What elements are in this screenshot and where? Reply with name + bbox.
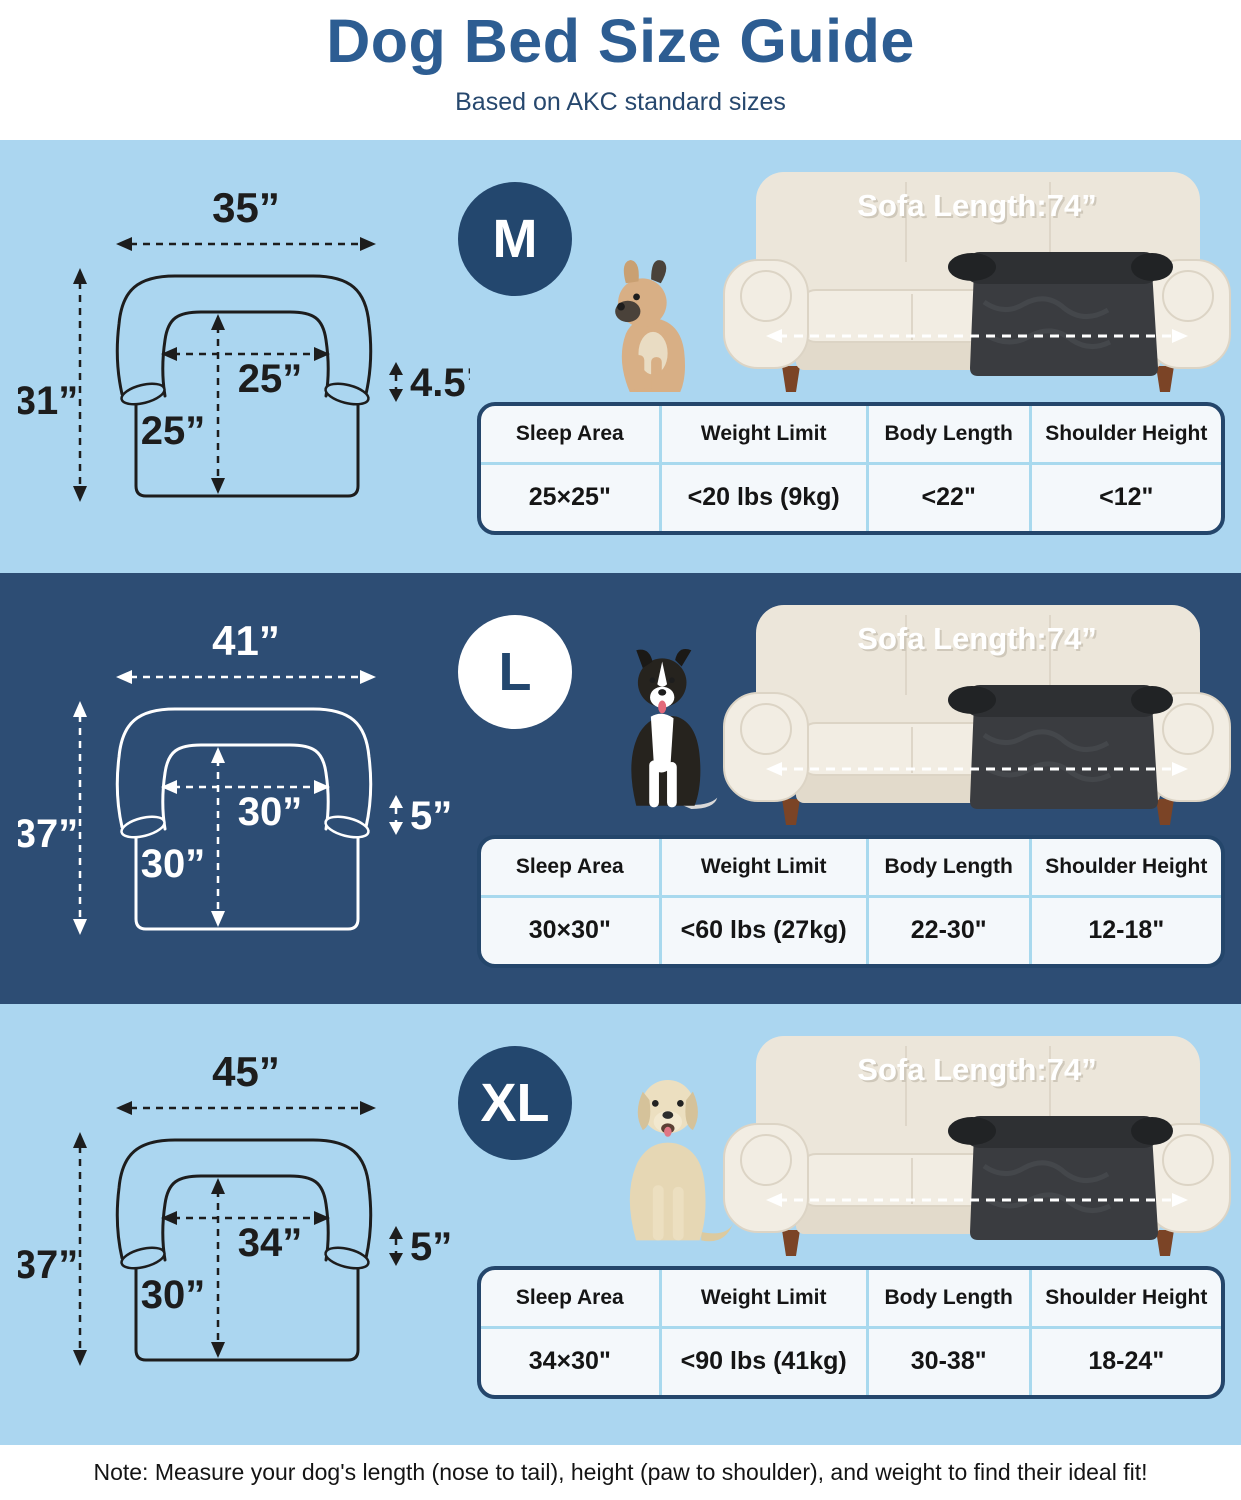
sofa-with-dog-bed-photo: Sofa Length:74” Sofa Length:74” [716,597,1238,829]
header: Dog Bed Size Guide Based on AKC standard… [0,0,1241,140]
table-value-weight-limit: <20 lbs (9kg) [659,465,866,531]
table-value-sleep-area: 25×25" [481,465,659,531]
table-header-shoulder-height: Shoulder Height [1029,1270,1221,1329]
bolster-height-label: 5” [410,1225,452,1269]
bolster-height-label: 4.5” [410,361,470,405]
dog-photo [596,258,714,394]
outer-height-label: 31” [18,379,78,423]
table-value-sleep-area: 34×30" [481,1329,659,1395]
inner-width-label: 25” [238,357,303,401]
size-badge: L [458,615,572,729]
bed-top-view-diagram: 41” 37” 30” 30” 5” [18,609,470,957]
size-section-m: 35” 31” 25” 25” 4.5” M [0,140,1241,573]
table-value-weight-limit: <90 lbs (41kg) [659,1329,866,1395]
size-section-xl: 45” 37” 34” 30” 5” XL [0,1004,1241,1445]
table-value-shoulder-height: 18-24" [1029,1329,1221,1395]
bed-top-view-diagram: 35” 31” 25” 25” 4.5” [18,176,470,524]
table-value-body-length: 22-30" [866,898,1029,964]
inner-depth-label: 30” [141,1273,206,1317]
sofa-with-dog-bed-photo: Sofa Length:74” Sofa Length:74” [716,164,1238,396]
outer-width-label: 35” [212,184,280,231]
dog-bed-cover [948,685,1173,809]
size-section-l: 41” 37” 30” 30” 5” L [0,573,1241,1004]
sofa-with-dog-bed-photo: Sofa Length:74” Sofa Length:74” [716,1028,1238,1260]
page-title: Dog Bed Size Guide [0,6,1241,76]
table-value-body-length: 30-38" [866,1329,1029,1395]
page-subtitle: Based on AKC standard sizes [0,88,1241,117]
table-value-shoulder-height: <12" [1029,465,1221,531]
table-header-weight-limit: Weight Limit [659,1270,866,1329]
table-header-body-length: Body Length [866,406,1029,465]
dog-photo [600,647,726,809]
table-header-weight-limit: Weight Limit [659,839,866,898]
inner-depth-label: 25” [141,409,206,453]
bed-top-view-diagram: 45” 37” 34” 30” 5” [18,1040,470,1388]
table-header-shoulder-height: Shoulder Height [1029,406,1221,465]
table-header-sleep-area: Sleep Area [481,406,659,465]
dog-bed-cover [948,1116,1173,1240]
size-badge: M [458,182,572,296]
outer-width-label: 45” [212,1048,280,1095]
dog-bed-cover [948,252,1173,376]
dog-photo-border-collie [600,647,726,809]
sofa-length-label: Sofa Length:74” [857,188,1096,223]
table-header-shoulder-height: Shoulder Height [1029,839,1221,898]
inner-depth-label: 30” [141,842,206,886]
measuring-note: Note: Measure your dog's length (nose to… [93,1459,1147,1486]
outer-height-label: 37” [18,1243,78,1287]
size-spec-table: Sleep Area Weight Limit Body Length Shou… [477,402,1225,535]
outer-width-label: 41” [212,617,280,664]
bolster-height-label: 5” [410,794,452,838]
table-value-body-length: <22" [866,465,1029,531]
table-value-shoulder-height: 12-18" [1029,898,1221,964]
table-header-sleep-area: Sleep Area [481,839,659,898]
sofa-length-label: Sofa Length:74” [857,621,1096,656]
dog-photo-french-bulldog [596,258,714,394]
inner-width-label: 34” [238,1221,303,1265]
table-header-weight-limit: Weight Limit [659,406,866,465]
table-value-sleep-area: 30×30" [481,898,659,964]
size-badge: XL [458,1046,572,1160]
size-sections: 35” 31” 25” 25” 4.5” M [0,140,1241,1445]
dog-bed-size-guide: Dog Bed Size Guide Based on AKC standard… [0,0,1241,1500]
table-value-weight-limit: <60 lbs (27kg) [659,898,866,964]
table-header-body-length: Body Length [866,1270,1029,1329]
footer: Note: Measure your dog's length (nose to… [0,1445,1241,1500]
table-header-body-length: Body Length [866,839,1029,898]
outer-height-label: 37” [18,812,78,856]
sofa-length-label: Sofa Length:74” [857,1052,1096,1087]
table-header-sleep-area: Sleep Area [481,1270,659,1329]
size-spec-table: Sleep Area Weight Limit Body Length Shou… [477,835,1225,968]
size-spec-table: Sleep Area Weight Limit Body Length Shou… [477,1266,1225,1399]
inner-width-label: 30” [238,790,303,834]
